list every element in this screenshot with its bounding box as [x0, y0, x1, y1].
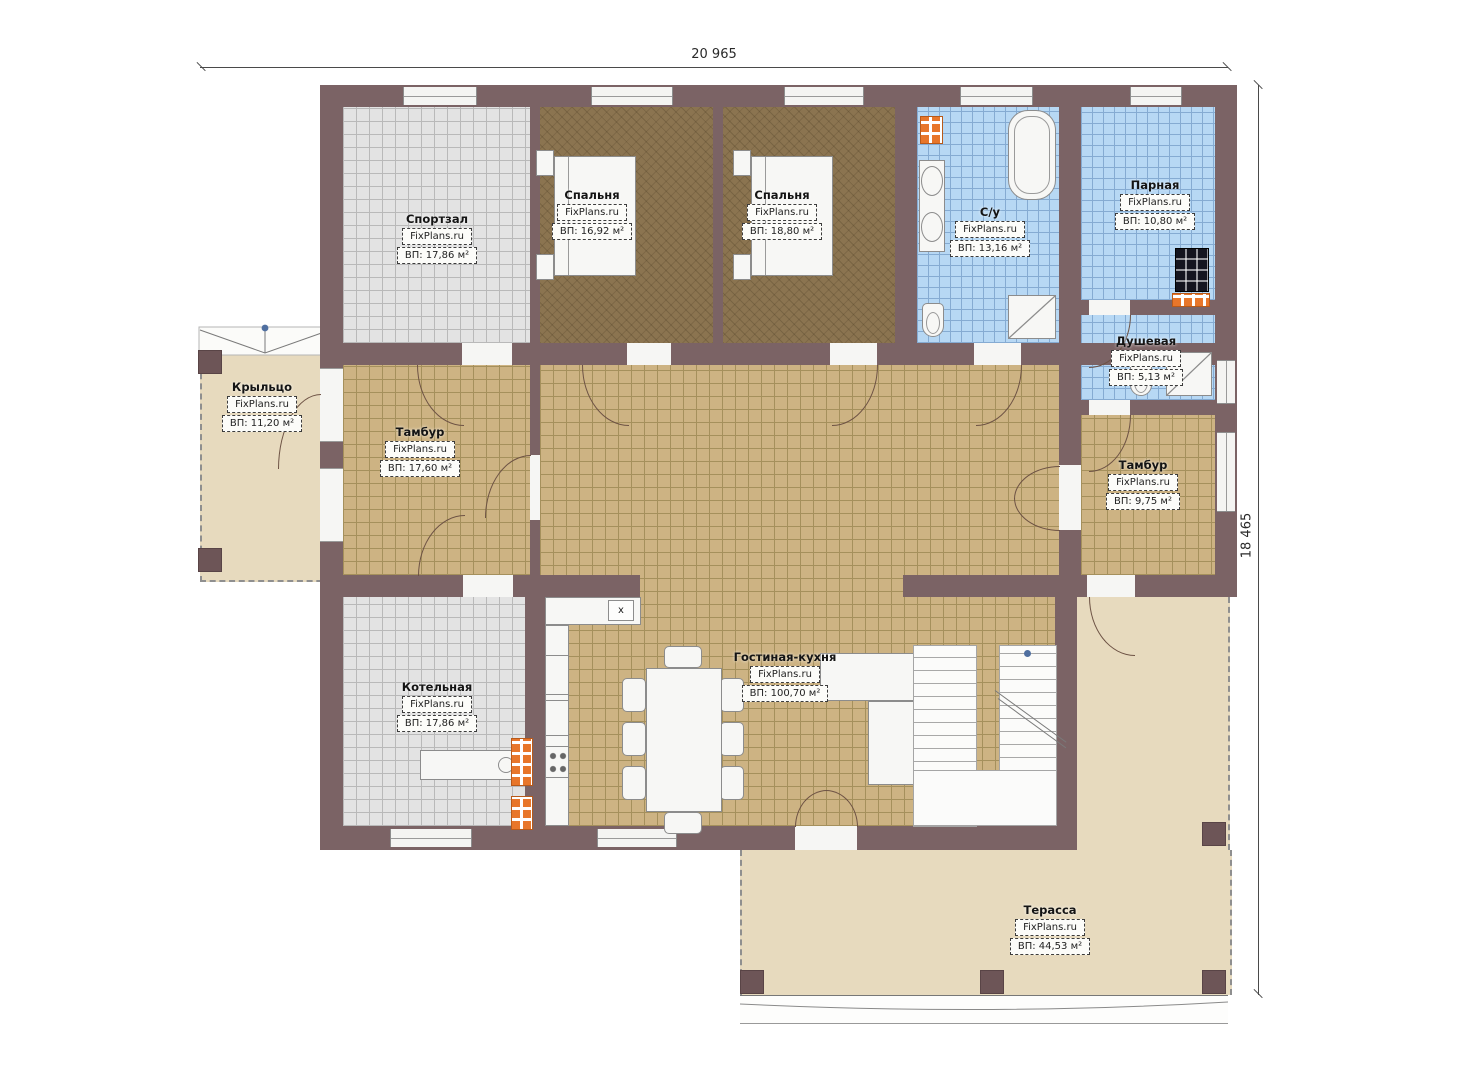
door-porch-upper — [320, 368, 343, 442]
window-right-2 — [1217, 432, 1235, 512]
wall-su-parnaya — [1059, 107, 1081, 343]
window-top-1 — [403, 87, 477, 105]
door-dushevaya-tambur2 — [1089, 400, 1130, 415]
chair — [720, 766, 744, 800]
terrace-post — [740, 970, 764, 994]
dimension-height-line — [1258, 85, 1259, 995]
terrace-post — [1202, 970, 1226, 994]
cooktop — [545, 746, 569, 778]
wall-kotelnaya-kitchen — [525, 597, 545, 826]
porch-post — [198, 548, 222, 572]
door-bedroom2 — [830, 343, 877, 365]
window-top-3 — [784, 87, 864, 105]
wall-right — [1215, 85, 1237, 597]
window-top-5 — [1130, 87, 1182, 105]
window-top-4 — [960, 87, 1033, 105]
shower-tray — [1166, 352, 1212, 396]
bed-pillow-line — [765, 157, 766, 275]
stair-start-dot — [1024, 650, 1031, 657]
terrace-post — [980, 970, 1004, 994]
radiator — [1172, 293, 1210, 307]
chair — [622, 722, 646, 756]
wall-sportzal-bedroom1 — [530, 107, 540, 343]
terrace-step-band — [740, 995, 1228, 1024]
sofa-vertical — [868, 701, 914, 785]
terrace-post — [1202, 822, 1226, 846]
chair — [622, 678, 646, 712]
nightstand — [536, 150, 554, 176]
radiator — [511, 738, 533, 786]
nightstand — [733, 150, 751, 176]
door-living-terrace — [795, 826, 857, 850]
dimension-width-line — [200, 67, 1228, 68]
dimension-width-label: 20 965 — [654, 47, 774, 62]
shower-tray — [1008, 295, 1056, 339]
door-su — [974, 343, 1021, 365]
wall-hall-rightrooms — [1059, 343, 1081, 575]
nightstand — [536, 254, 554, 280]
door-parnaya-dushevaya — [1089, 300, 1130, 315]
door-porch-lower — [320, 468, 343, 542]
sofa-horizontal — [820, 653, 914, 701]
door-tambur1-hall — [530, 455, 540, 520]
kitchen-vent: х — [608, 600, 634, 621]
window-bottom-1 — [390, 829, 472, 847]
nightstand — [733, 254, 751, 280]
door-hall-tambur2 — [1059, 465, 1081, 530]
bed-bedroom1 — [554, 156, 636, 276]
dimension-height-label: 18 465 — [1240, 491, 1255, 581]
chair — [622, 766, 646, 800]
bed-bedroom2 — [751, 156, 833, 276]
dining-table — [646, 668, 722, 812]
fridge — [545, 655, 569, 695]
chair — [720, 722, 744, 756]
door-sportzal — [462, 343, 512, 365]
window-top-2 — [591, 87, 673, 105]
vent-label: х — [618, 605, 624, 616]
toilet — [922, 303, 944, 337]
bathtub — [1008, 110, 1056, 200]
sauna-stove — [1175, 248, 1209, 292]
radiator — [511, 796, 533, 830]
room-floor-kotelnaya — [343, 597, 525, 826]
stair-landing — [913, 770, 1057, 826]
wall-mid-lower-right — [903, 575, 1237, 597]
door-kotelnaya — [463, 575, 513, 597]
wall-bedroom2-su — [895, 107, 917, 343]
stair-flight-right — [999, 645, 1057, 771]
floor-plan-canvas: х Спортзал FixPlans.ru ВП: 17,86 м² Спал… — [0, 0, 1474, 1080]
radiator — [920, 116, 943, 144]
chair — [664, 812, 702, 834]
kitchen-sink — [545, 700, 569, 736]
chair — [664, 646, 702, 668]
wall-bedroom1-bedroom2 — [713, 107, 723, 343]
window-right-1 — [1217, 360, 1235, 404]
porch-post — [198, 350, 222, 374]
wall-stairs-right — [1055, 597, 1077, 850]
sink — [921, 212, 943, 242]
door-bedroom1 — [627, 343, 671, 365]
chair — [720, 678, 744, 712]
room-floor-sportzal — [343, 107, 530, 343]
sink — [921, 166, 943, 196]
toilet — [1130, 362, 1152, 396]
door-tambur2-terrace — [1087, 575, 1135, 597]
bed-pillow-line — [568, 157, 569, 275]
